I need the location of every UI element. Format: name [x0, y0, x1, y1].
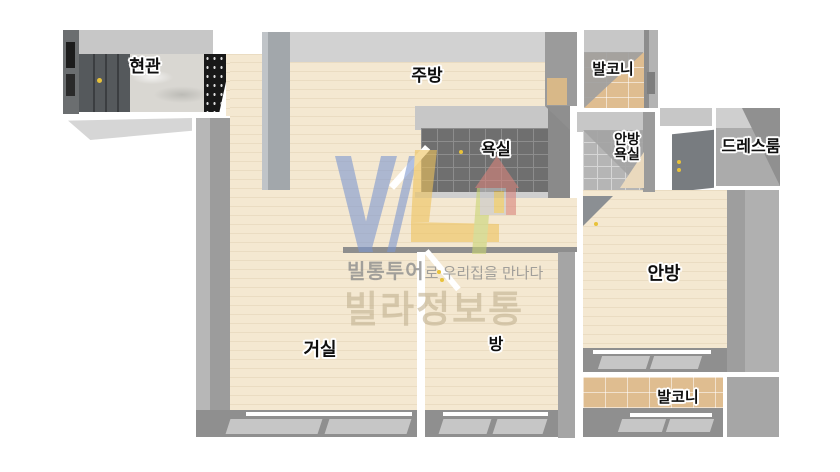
entrance-frame-dark: [66, 42, 75, 68]
balcony-bottom-right-wall: [727, 377, 779, 437]
interior-wall-stub: [262, 32, 290, 190]
living-window-pane: [325, 419, 412, 434]
label-dressroom: 드레스룸: [722, 138, 781, 155]
room-outer-gap: [575, 252, 583, 438]
bathroom-top-wall: [415, 106, 570, 130]
balcony-bottom-window-pane: [618, 419, 666, 432]
master-bath-right-wall: [643, 112, 655, 192]
master-bedroom-window-pane: [650, 356, 702, 369]
balcony-bottom-window-pane: [666, 419, 714, 432]
room-window-pane: [493, 419, 548, 434]
label-master-bathroom: 안방 욕실: [614, 132, 640, 162]
balcony-bottom-tiles: [583, 377, 723, 408]
label-room: 방: [489, 336, 504, 353]
label-living-room: 거실: [303, 340, 336, 359]
master-bedroom-window-sill: [593, 350, 711, 354]
main-top-wall: [262, 32, 577, 62]
entrance-frame-dark2: [66, 74, 75, 96]
label-bathroom: 욕실: [481, 141, 510, 158]
master-bedroom-right-wall: [727, 190, 779, 372]
floor-plan: 빌통투어로 우리집을 만나다 빌라정보통 현관 주방 발코니 욕실 안방 욕실 …: [0, 0, 840, 472]
label-master-bathroom-line1: 안방: [614, 132, 640, 147]
left-outer-wall: [196, 118, 230, 410]
entrance-lower-wall: [68, 118, 192, 140]
balcony-top-window: [647, 72, 655, 94]
niche-top-wall: [660, 108, 712, 126]
kitchen-cabinet: [547, 78, 567, 105]
label-balcony-bottom: 발코니: [657, 390, 698, 406]
closet-door-dot: [677, 168, 681, 172]
label-master-bedroom: 안방: [647, 264, 680, 283]
balcony-top-right-wall: [644, 30, 658, 108]
living-window-pane: [226, 419, 323, 434]
balcony-bottom-window-sill: [630, 413, 712, 417]
entrance-door-line: [117, 54, 119, 112]
label-kitchen: 주방: [411, 67, 442, 85]
bath-outer-gap: [570, 106, 577, 198]
entrance-door-line: [93, 54, 95, 112]
master-bedroom-door-dot: [594, 222, 598, 226]
label-master-bathroom-line2: 욕실: [614, 147, 640, 162]
room-window-pane: [439, 419, 492, 434]
watermark-brand-name: 빌라정보통: [344, 279, 524, 333]
master-bedroom-window-pane: [598, 356, 650, 369]
label-balcony-top: 발코니: [592, 62, 633, 78]
living-window-sill: [246, 412, 412, 416]
brand-logo-watermark: [325, 148, 537, 266]
closet-door-dot: [677, 160, 681, 164]
label-entrance: 현관: [129, 58, 160, 76]
entrance-top-wall: [63, 30, 213, 54]
door-handle-dot: [97, 78, 102, 83]
room-window-sill: [443, 412, 548, 416]
room-right-wall: [558, 252, 575, 438]
entrance-door-line: [105, 54, 107, 112]
